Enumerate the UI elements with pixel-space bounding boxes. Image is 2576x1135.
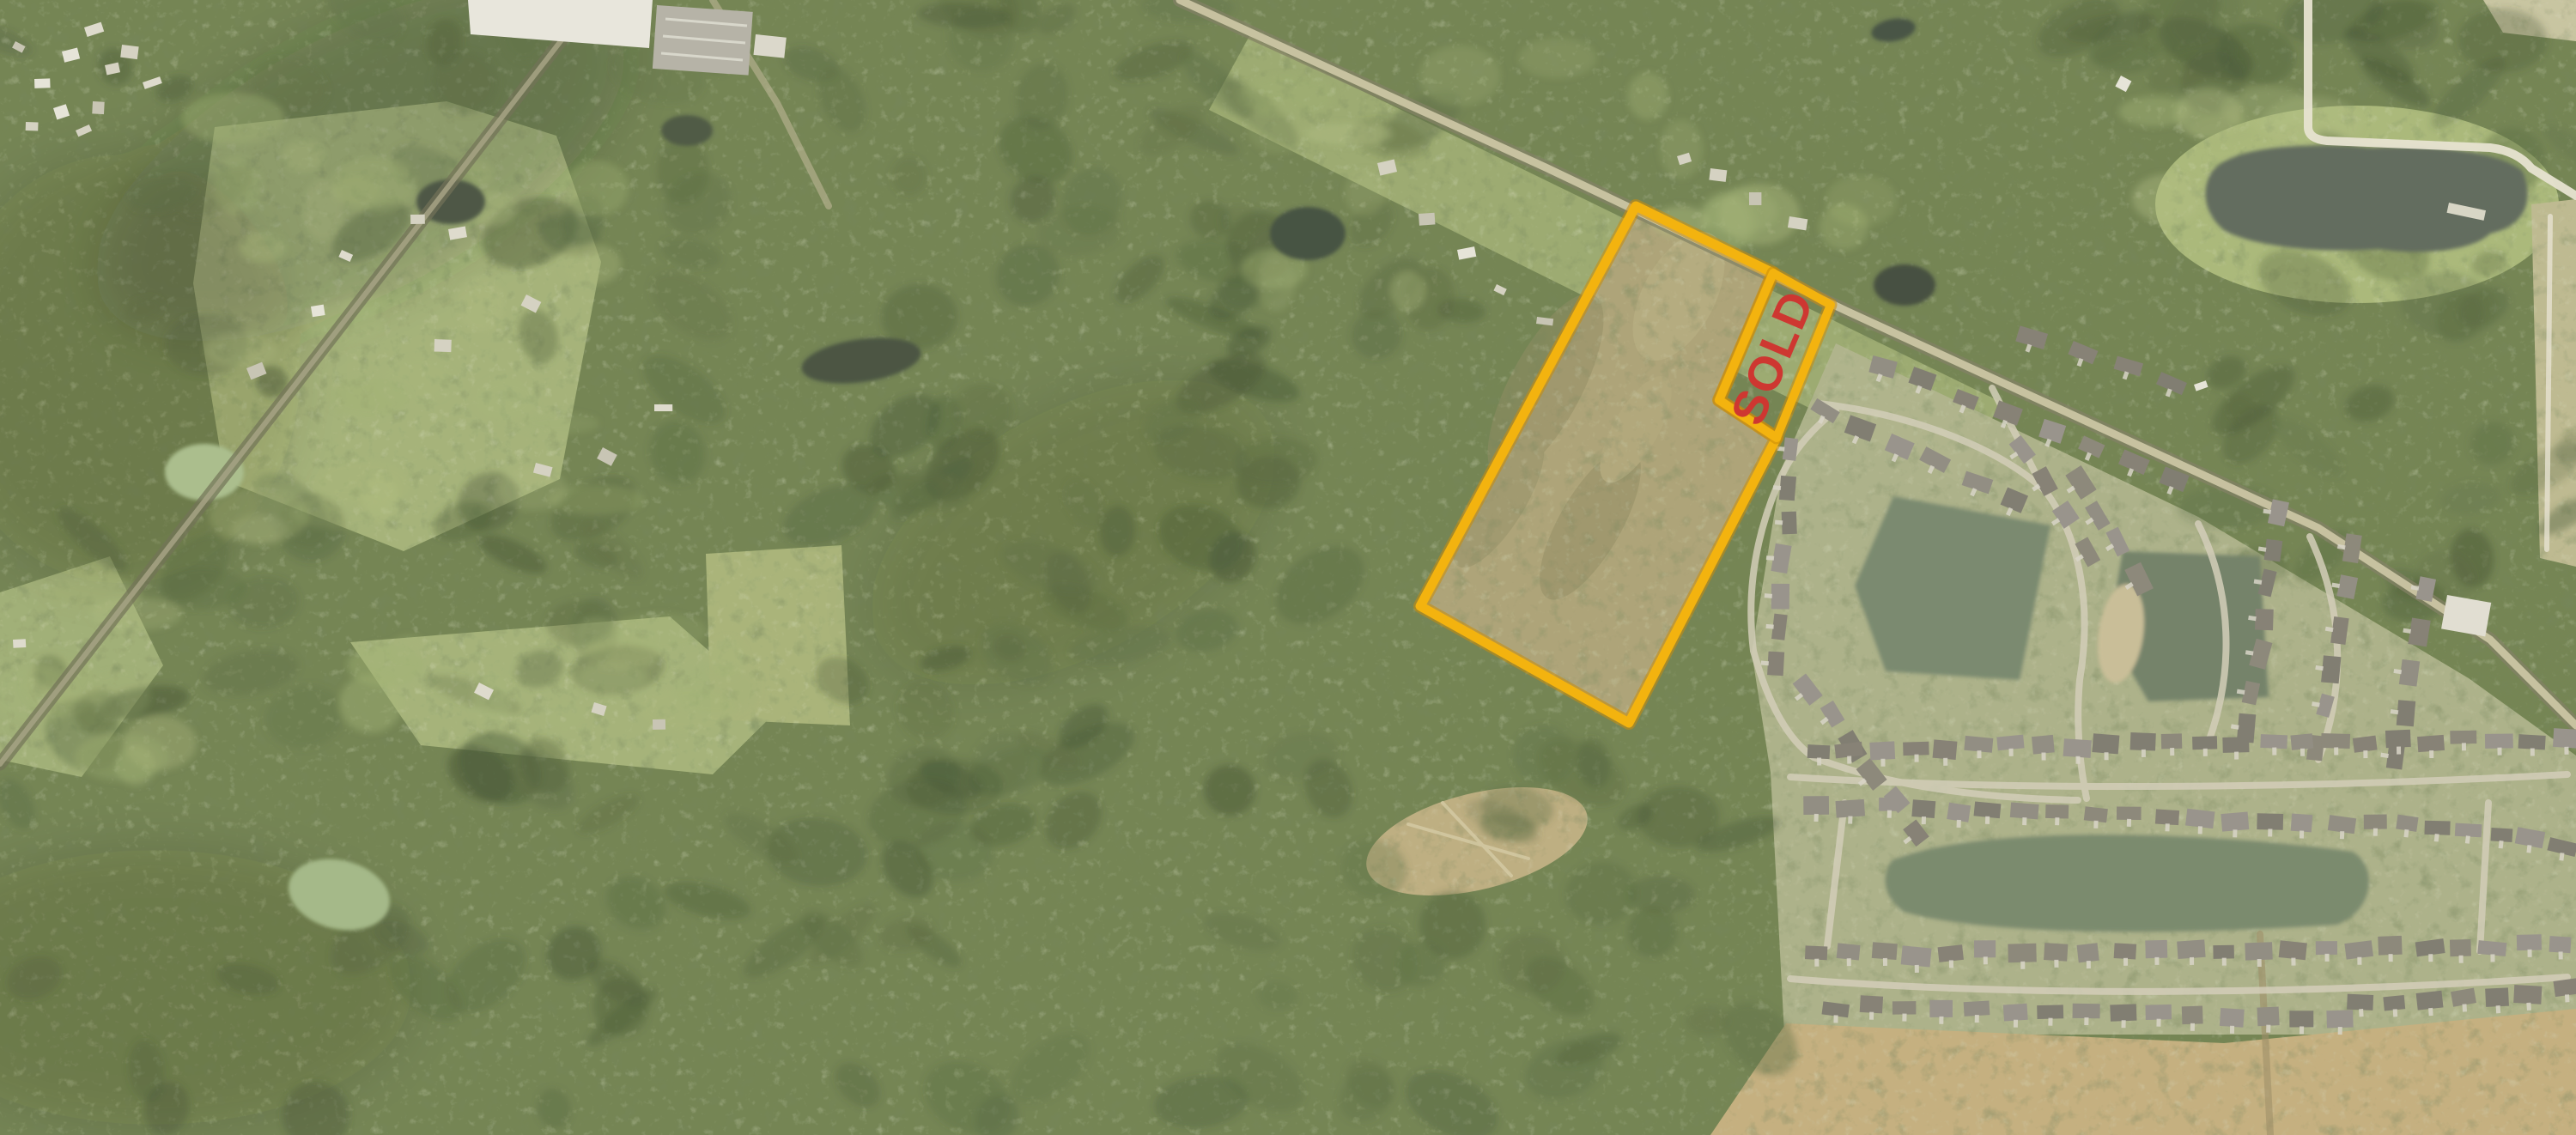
atmospheric-haze xyxy=(0,0,2576,1135)
aerial-photo-canvas: SOLD xyxy=(0,0,2576,1135)
aerial-photo: SOLD xyxy=(0,0,2576,1135)
